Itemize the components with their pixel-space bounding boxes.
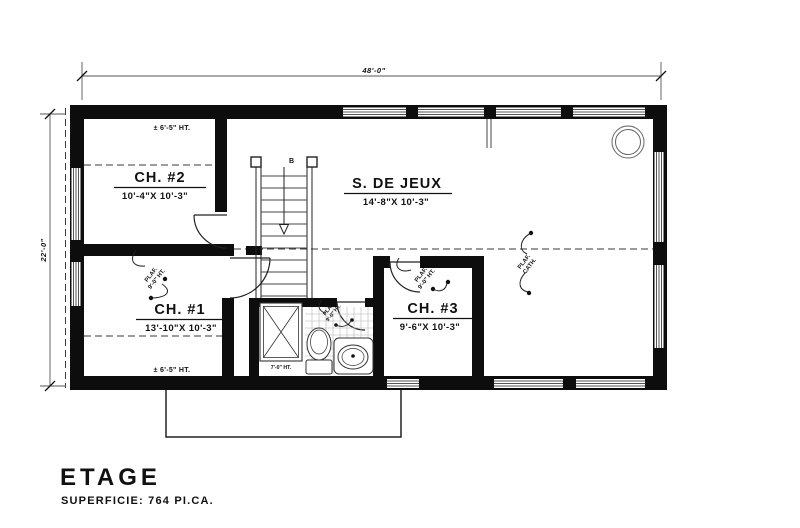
room-size: 14'-8"X 10'-3": [363, 197, 429, 208]
wall-ch3-right: [472, 256, 484, 376]
stair-direction-label: B: [289, 158, 294, 165]
wall-ch2-ch1-divider: [84, 244, 234, 256]
dimension-value: 48'-0": [361, 66, 385, 75]
eaves-height-top: ± 6'-5" HT.: [154, 125, 191, 132]
stair-arrowhead-icon: [280, 225, 289, 235]
faucet-dot: [351, 354, 355, 358]
wall-bath-left: [249, 298, 259, 376]
leader-dot: [446, 280, 450, 284]
stair-newel-left: [251, 157, 261, 167]
leader-dot: [350, 318, 354, 322]
wall-bath-top-b: [365, 298, 373, 307]
floor-plan-drawing: B 7'-0" HT.: [0, 0, 800, 528]
room-label-ch3: CH. #3 9'-6"X 10'-3": [393, 301, 474, 333]
room-size: 10'-4"X 10'-3": [122, 191, 188, 202]
window-left-wall: [72, 168, 81, 306]
plaf-annotation-ch1: PLAF. 9'-0" HT.: [133, 250, 168, 300]
bathroom: 7'-0" HT.: [260, 303, 373, 374]
plaf-annotation-cathedral: PLAF. CATH.: [517, 231, 538, 295]
floor-plan-page: B 7'-0" HT.: [0, 0, 800, 528]
leader-curve: [520, 273, 528, 292]
room-name: S. DE JEUX: [352, 176, 442, 192]
wall-bath-right-ch3-left: [373, 256, 384, 376]
title-block: ETAGE SUPERFICIE: 764 PI.CA.: [60, 464, 214, 507]
door-ch1: [230, 258, 270, 298]
wall-ch3-top-a: [384, 256, 390, 268]
toilet: [306, 328, 332, 374]
stair-newel-right: [307, 157, 317, 167]
plan-title: ETAGE: [60, 464, 161, 491]
room-name: CH. #1: [154, 302, 205, 318]
room-name: CH. #2: [134, 170, 185, 186]
leader-dot: [527, 291, 531, 295]
room-label-jeux: S. DE JEUX 14'-8"X 10'-3": [344, 176, 452, 208]
dimension-left: 22'-0": [39, 109, 66, 391]
shower: [260, 303, 302, 361]
mullion-line: [487, 119, 491, 148]
dimension-top: 48'-0": [77, 62, 666, 100]
wall-left: [70, 105, 84, 390]
room-label-ch2: CH. #2 10'-4"X 10'-3": [114, 170, 206, 202]
wall-ch2-right: [215, 119, 227, 212]
wall-ch1-right-lower: [222, 298, 234, 376]
shower-height-label: 7'-0" HT.: [271, 365, 292, 371]
dimension-value: 22'-0": [39, 238, 48, 262]
room-size: 13'-10"X 10'-3": [145, 323, 217, 334]
lower-roof-outline: [166, 390, 401, 437]
leader-dot: [149, 296, 153, 300]
sink: [334, 338, 373, 374]
plan-area: SUPERFICIE: 764 PI.CA.: [61, 495, 214, 507]
leader-dot: [163, 277, 167, 281]
room-label-ch1: CH. #1 13'-10"X 10'-3": [136, 302, 226, 334]
wall-stair-stub: [246, 246, 262, 255]
eaves-height-bottom: ± 6'-5" HT.: [154, 367, 191, 374]
column-circle: [612, 126, 644, 158]
door-ch2: [194, 215, 227, 248]
stairs: B: [251, 157, 317, 298]
leader-curve: [397, 258, 411, 271]
room-size: 9'-6"X 10'-3": [400, 322, 460, 333]
room-name: CH. #3: [407, 301, 458, 317]
leader-curve: [336, 321, 351, 326]
leader-curve: [521, 233, 531, 254]
leader-curve: [433, 283, 447, 291]
